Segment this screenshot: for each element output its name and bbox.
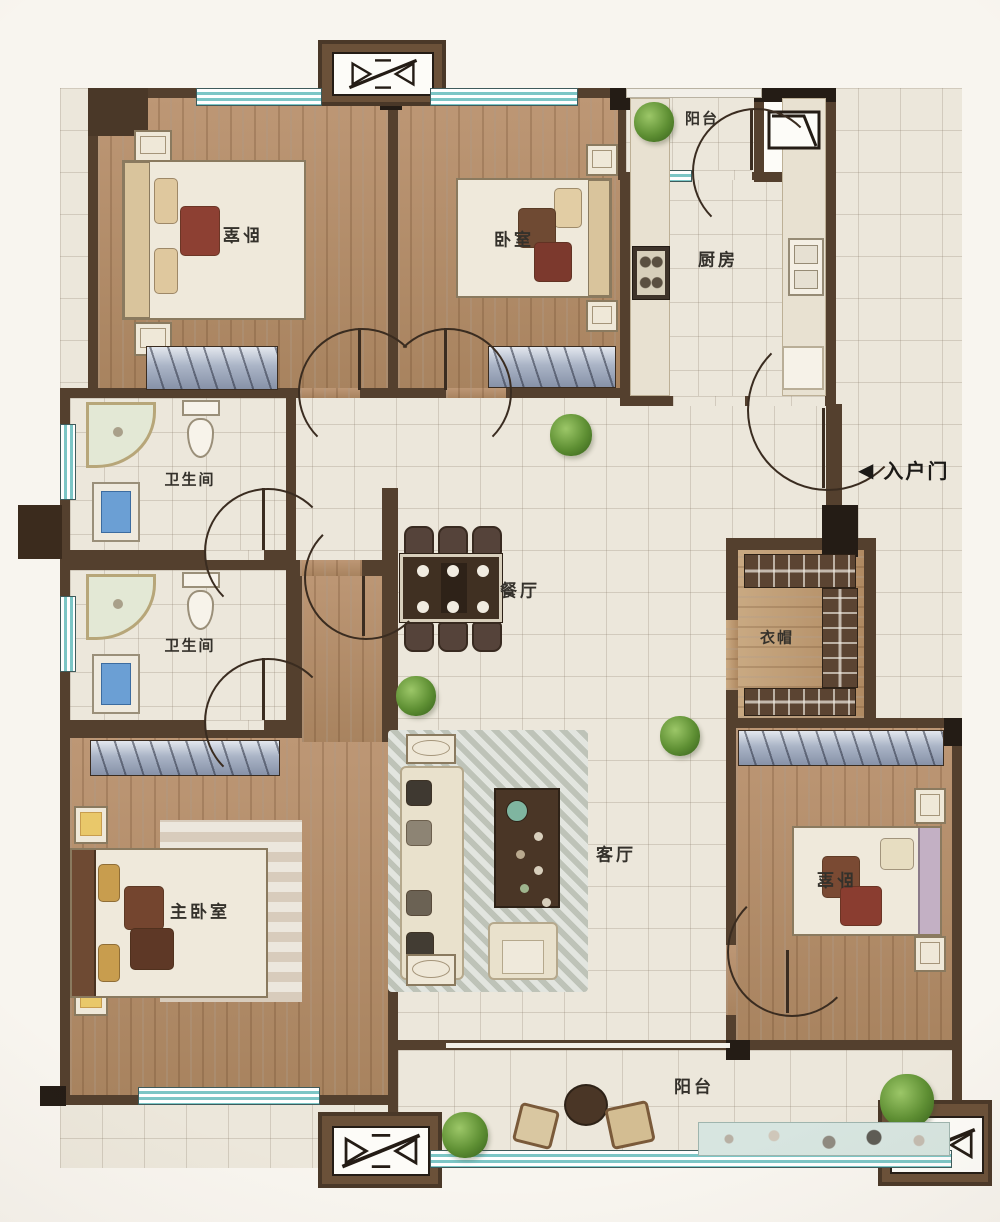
bed-pillow [124, 886, 164, 930]
door-leaf [822, 408, 825, 488]
shower-drain [113, 427, 123, 437]
door-leaf [786, 950, 789, 1013]
door-arc-bedroom-tm [384, 328, 512, 456]
wardrobe-bedroom-br [738, 730, 944, 766]
room-label-bedroom-br: 卧室 [814, 869, 854, 894]
window-bedroom-tl [196, 88, 322, 106]
toilet-icon [182, 400, 220, 460]
bed-pillow [154, 248, 178, 294]
sofa-pillow [406, 780, 432, 806]
nightstand [914, 788, 946, 824]
room-label-dining: 餐厅 [500, 577, 540, 602]
sink-basin [794, 270, 818, 289]
door-leaf [750, 110, 753, 170]
sink-bowl-blue [101, 491, 131, 533]
wall-corner-top-left-step [88, 88, 148, 136]
door-arc-bathroom-2 [204, 658, 332, 786]
dining-chair [472, 526, 502, 556]
sliding-door-living-balcony [446, 1043, 730, 1048]
room-label-master: 主卧室 [170, 898, 230, 923]
flue-icon [334, 1128, 428, 1174]
entrance-arrow-icon: ◀ [858, 458, 875, 482]
tea-set [506, 800, 528, 822]
door-leaf [262, 658, 265, 720]
stove-burners [637, 251, 665, 295]
door-opening [673, 396, 745, 406]
window-balcony-top-glazing [626, 88, 762, 98]
flue-bottom-left [318, 1112, 442, 1188]
stove-icon [632, 246, 670, 300]
bed-pillow-accent [534, 242, 572, 282]
bed-headboard [588, 180, 610, 296]
toilet-bowl [187, 418, 214, 458]
bed-headboard [72, 850, 96, 996]
toilet-tank [182, 400, 220, 416]
flue-top [318, 40, 446, 106]
room-label-bedroom-tm: 卧室 [494, 226, 534, 251]
balcony-round-table [564, 1084, 608, 1126]
window-bedroom-tm [430, 88, 578, 106]
armchair [488, 922, 558, 980]
wall-corner-bottom-left [40, 1086, 66, 1106]
window-bathroom-1 [60, 424, 76, 500]
bed-pillow [98, 944, 120, 982]
sink-bowl-blue [101, 663, 131, 705]
sofa-side-table [406, 734, 456, 764]
shower-drain [113, 599, 123, 609]
plant-icon [634, 102, 674, 142]
nightstand [586, 144, 618, 176]
bed-headboard [124, 162, 150, 318]
wall-black-br-corner [944, 718, 962, 746]
bed-top-mid [456, 178, 612, 298]
plant-icon [442, 1112, 488, 1158]
door-leaf [262, 488, 265, 550]
bathroom-sink-icon [92, 482, 140, 542]
bathroom-sink-icon [92, 654, 140, 714]
toilet-bowl [187, 590, 214, 630]
table-runner [441, 563, 467, 613]
bed-pillow [554, 188, 582, 228]
bed-headboard [918, 828, 940, 934]
window-master-bottom [138, 1087, 320, 1105]
room-label-bedroom-tl: 卧室 [220, 224, 260, 249]
nightstand [586, 300, 618, 332]
dining-chair [472, 622, 502, 652]
sofa-side-table [406, 954, 456, 986]
door-leaf [362, 576, 365, 636]
flue-top-symbol-box [332, 52, 434, 96]
sink-basin [794, 245, 818, 264]
nightstand [914, 936, 946, 972]
floor-plan: 卧室 卧室 阳台 厨房 卫生间 卫生间 餐厅 衣帽 主卧室 客厅 卧室 阳台 ◀… [0, 0, 1000, 1222]
sofa-pillow [406, 890, 432, 916]
bed-master [70, 848, 268, 998]
dining-chair [438, 526, 468, 556]
armchair-cushion [502, 940, 544, 974]
room-label-balcony-bottom: 阳台 [674, 1073, 714, 1098]
plant-icon [550, 414, 592, 456]
pebble-pond [698, 1122, 950, 1156]
dining-chair [438, 622, 468, 652]
wardrobe-bedroom-tl [146, 346, 278, 390]
wall-entry-black-block [822, 505, 858, 557]
room-label-cloakroom: 衣帽 [760, 627, 794, 648]
cloakroom-door-opening [726, 620, 738, 690]
bed-top-left [122, 160, 306, 320]
bed-pillow [880, 838, 914, 870]
nightstand [134, 130, 172, 162]
door-leaf [444, 328, 447, 390]
plant-icon [660, 716, 700, 756]
window-bathroom-2 [60, 596, 76, 672]
bed-pillow-accent [180, 206, 220, 256]
coffee-table [494, 788, 560, 908]
room-label-bathroom-2: 卫生间 [164, 635, 215, 656]
wall-left-protrusion [18, 505, 62, 559]
nightstand-lamp [74, 806, 108, 844]
door-arc-bedroom-br [727, 887, 857, 1017]
plant-icon [396, 676, 436, 716]
flue-icon [334, 54, 432, 94]
door-arc-master-corridor [304, 516, 428, 640]
bed-pillow [154, 178, 178, 224]
cloakroom-wardrobe-right [822, 588, 858, 688]
entrance-label: 入户门 [883, 455, 949, 484]
sofa-pillow [406, 820, 432, 846]
room-label-balcony-top: 阳台 [685, 108, 719, 129]
sofa [400, 766, 464, 980]
door-leaf [358, 328, 361, 390]
entrance-annotation: ◀ 入户门 [858, 455, 949, 484]
plant-icon [880, 1074, 934, 1128]
cloakroom-wardrobe-bottom [744, 688, 856, 716]
kitchen-sink-icon [788, 238, 824, 296]
room-label-living: 客厅 [596, 841, 636, 866]
bed-pillow [98, 864, 120, 902]
flue-bottom-left-symbol-box [332, 1126, 430, 1176]
balcony-cushion [604, 1100, 656, 1150]
dining-chair [404, 622, 434, 652]
bed-pillow-accent [130, 928, 174, 970]
room-label-bathroom-1: 卫生间 [164, 469, 215, 490]
cloakroom-wardrobe-top [744, 554, 856, 588]
room-label-kitchen: 厨房 [698, 246, 738, 271]
table-items [534, 832, 543, 841]
